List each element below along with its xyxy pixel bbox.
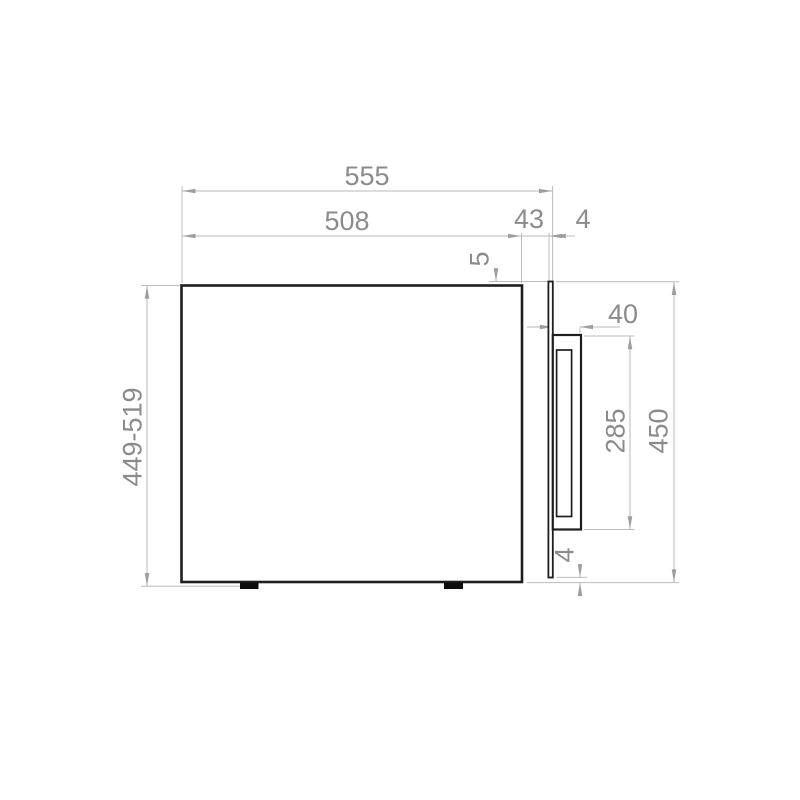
rear-foot: [444, 583, 463, 590]
arrow-down-icon: [494, 268, 499, 281]
dimension-drawing: 555 508 43 4 40 5 285 450 4 449-519: [0, 0, 800, 800]
appliance-outline: [182, 282, 582, 590]
arrow-down-icon: [672, 569, 677, 582]
front-foot: [240, 583, 259, 590]
overall-height-label: 450: [644, 408, 674, 453]
arrow-down-icon: [145, 573, 150, 586]
overall-depth-label: 555: [344, 161, 389, 191]
arrow-left-icon: [580, 325, 593, 330]
door-clearance-label: 43: [514, 204, 544, 234]
arrow-right-icon: [508, 234, 521, 239]
arrow-up-icon: [145, 286, 150, 299]
technical-drawing-canvas: 555 508 43 4 40 5 285 450 4 449-519: [0, 0, 800, 800]
arrow-down-icon: [628, 516, 633, 529]
bottom-panel-offset-label: 4: [550, 547, 580, 562]
arrow-down-icon: [578, 564, 583, 577]
arrow-up-icon: [672, 282, 677, 295]
handle-height-label: 285: [601, 408, 631, 453]
arrow-left-icon: [183, 189, 196, 194]
door-handle-inner: [557, 350, 572, 517]
arrow-up-icon: [578, 583, 583, 596]
top-panel-offset-label: 5: [465, 251, 495, 266]
adjustable-height-range-label: 449-519: [118, 387, 148, 486]
cabinet-body: [182, 286, 523, 583]
arrow-up-icon: [628, 336, 633, 349]
arrow-left-icon: [183, 234, 196, 239]
body-depth-label: 508: [324, 206, 369, 236]
arrow-right-icon: [539, 189, 552, 194]
handle-depth-label: 40: [608, 299, 638, 329]
door-panel-thickness-label: 4: [575, 204, 590, 234]
